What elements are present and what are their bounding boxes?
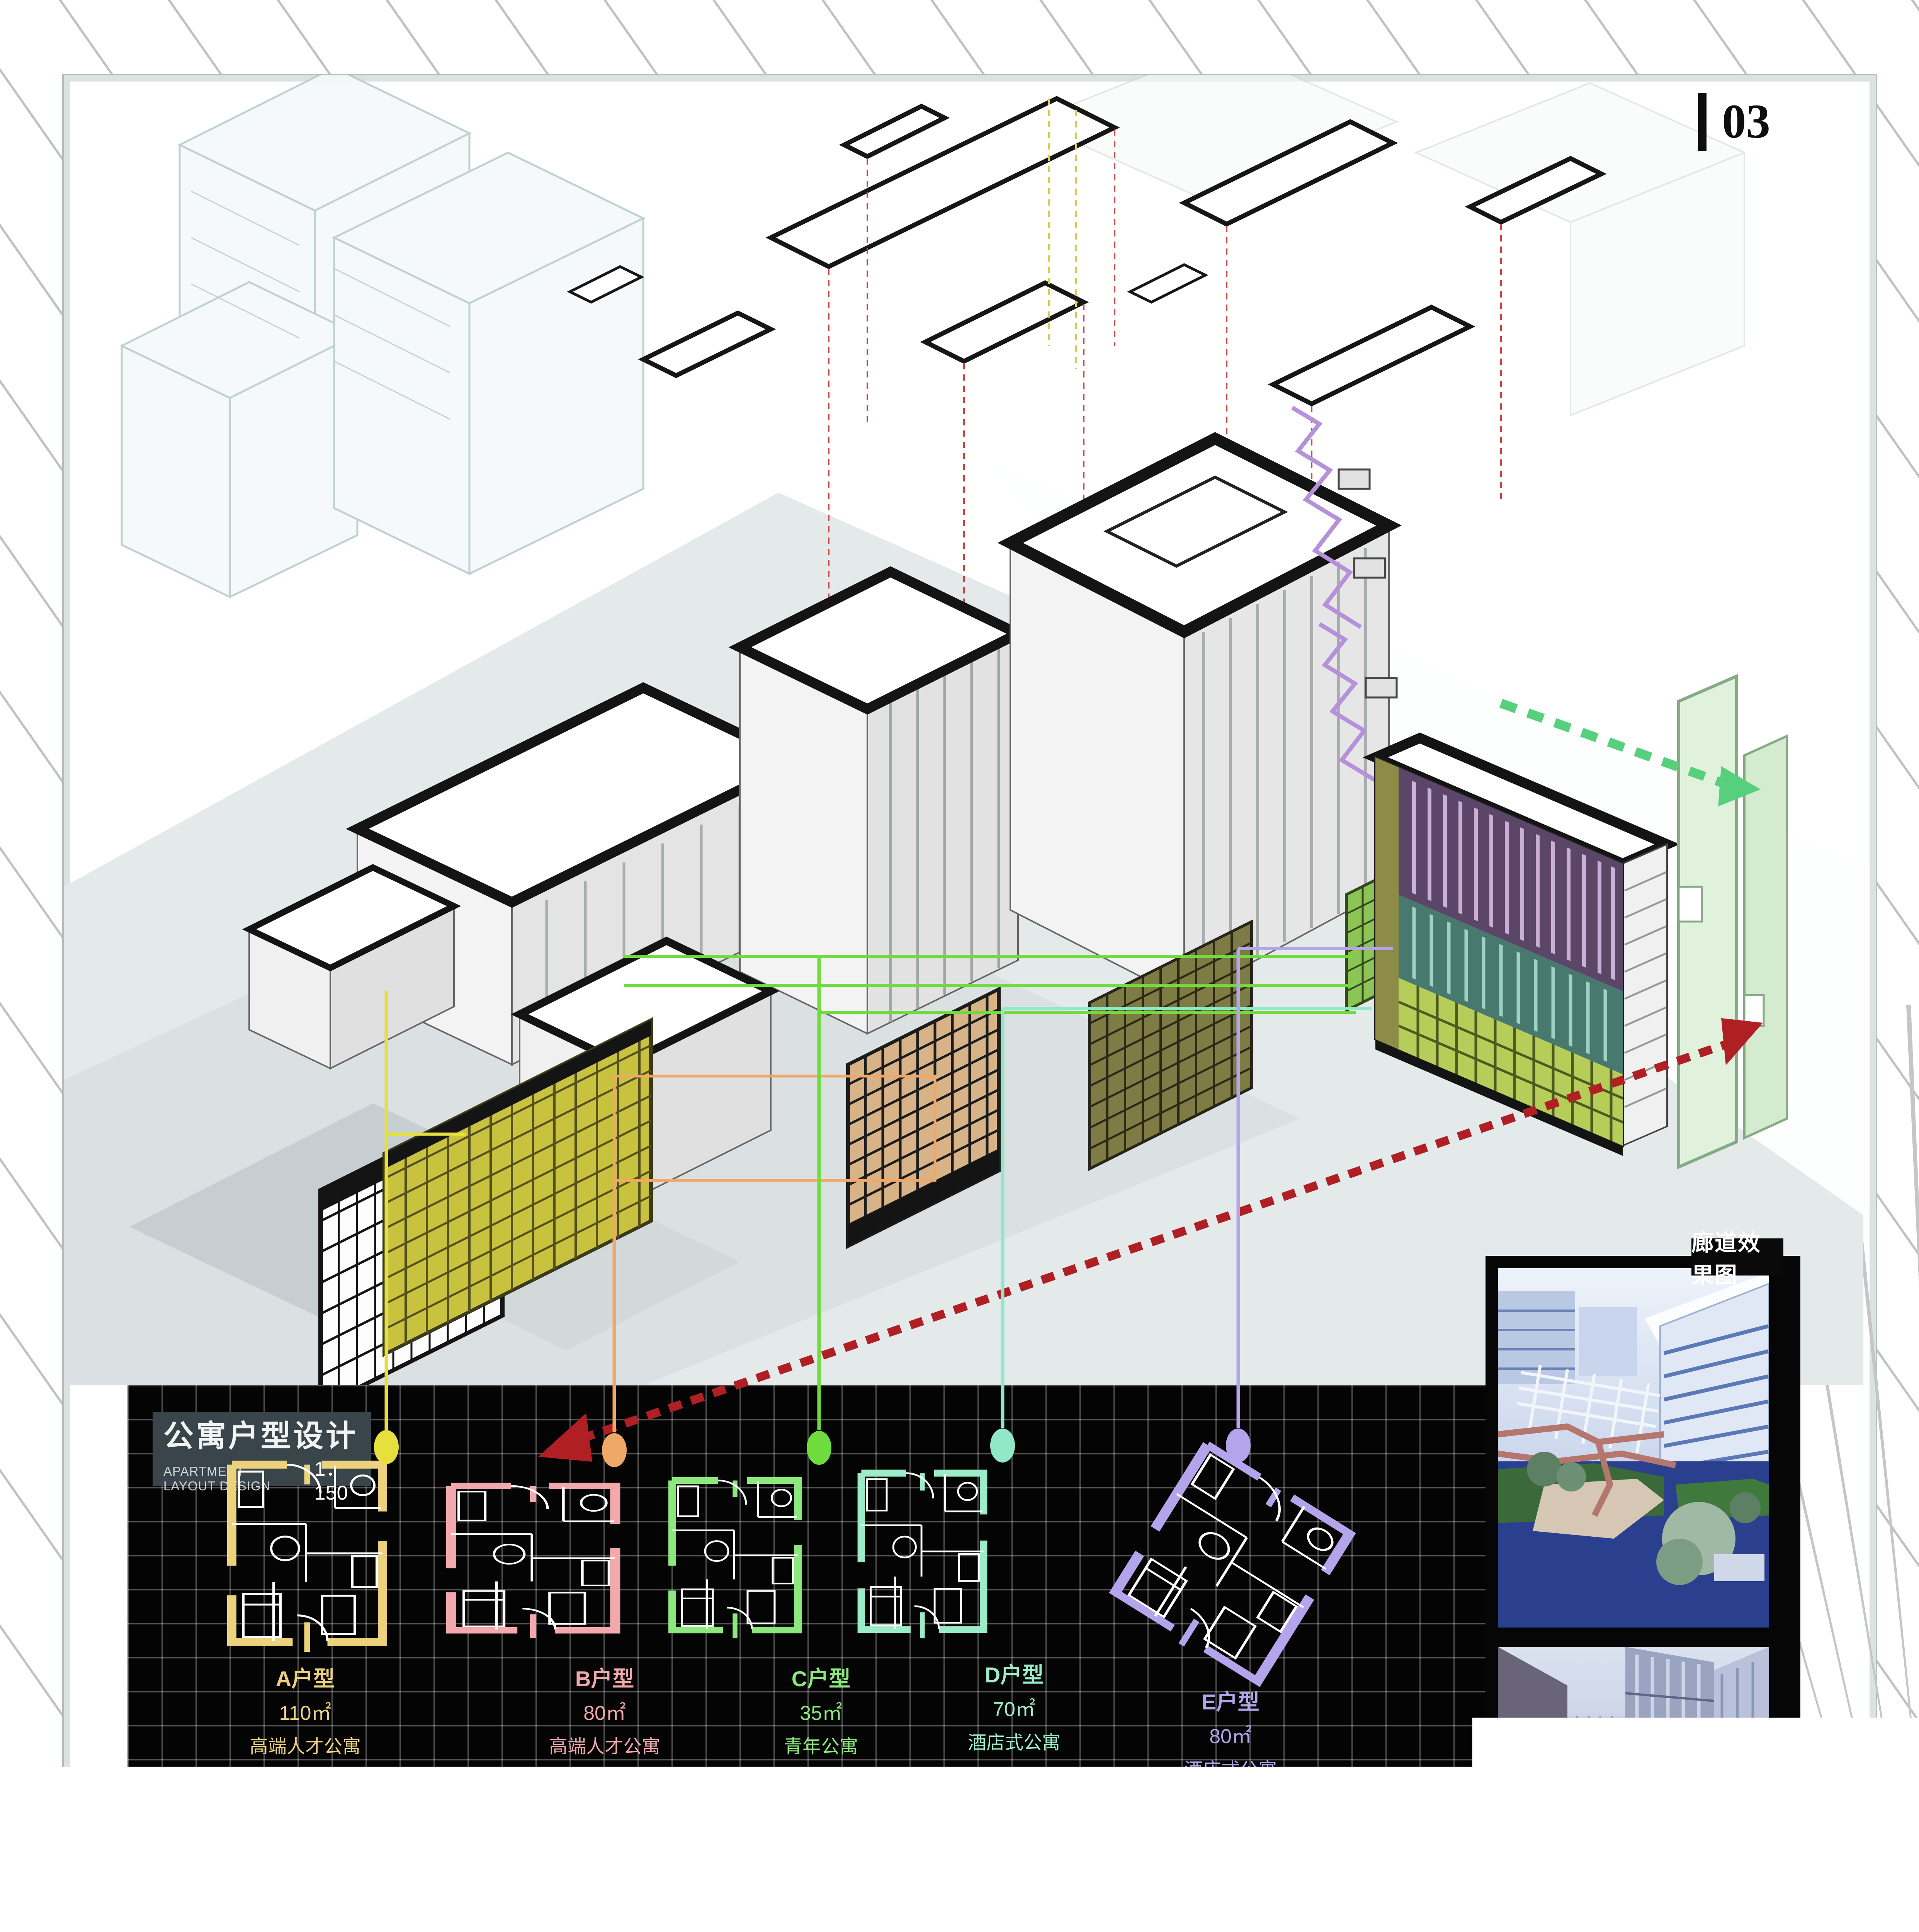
unit-name: D户型 bbox=[902, 1658, 1126, 1689]
corridor-render-panel bbox=[1486, 1256, 1800, 1932]
unit-B-info: B户型 80㎡ 高端人才公寓 户型根据需求灵活多变 适用于对生活品质较高的上班族… bbox=[493, 1662, 717, 1882]
floorplan-D bbox=[852, 1464, 993, 1638]
exploded-axonometric-diagram bbox=[64, 75, 1863, 1385]
unit-area: 80㎡ bbox=[493, 1697, 717, 1726]
unit-area: 80㎡ bbox=[1118, 1720, 1343, 1749]
page-number-value: 03 bbox=[1722, 94, 1770, 150]
corridor-render-street bbox=[1498, 1647, 1769, 1932]
glass-slab bbox=[1679, 676, 1787, 1167]
unit-features: 酒店式管理 洄游流线，路径合理 bbox=[902, 1772, 1126, 1816]
unit-type: 酒店式公寓 bbox=[902, 1727, 1126, 1754]
unit-area: 110㎡ bbox=[193, 1697, 417, 1726]
unit-description: 适用于满足刚需且预算不够充足的上班族及学生，也可以适用于游客居住 bbox=[709, 1818, 933, 1882]
unit-feature: 户型根据需求灵活多变 bbox=[193, 1776, 417, 1798]
unit-name: E户型 bbox=[1118, 1685, 1343, 1716]
unit-features: 酒店式管理 洄游流线，路径合理 阳台采光充足有设计感 bbox=[1118, 1799, 1343, 1865]
unit-area: 35㎡ bbox=[709, 1697, 933, 1726]
unit-description: 适用于对生活品质较高的上班族或者人数不多的小家庭及单独生活的老年人 bbox=[193, 1818, 417, 1882]
unit-feature: 户型根据需求灵活多变 bbox=[493, 1776, 717, 1798]
unit-description: 适用于追求生活品质的单身人群和长期出差的人员 bbox=[902, 1836, 1126, 1878]
ghost-context-buildings bbox=[122, 75, 643, 597]
unit-name: A户型 bbox=[193, 1662, 417, 1693]
unit-feature: 户型简单，功能齐全 bbox=[709, 1776, 933, 1798]
unit-type: 酒店式公寓 bbox=[1118, 1754, 1343, 1781]
page-number-bar bbox=[1698, 93, 1707, 151]
unit-type: 高端人才公寓 bbox=[193, 1731, 417, 1758]
unit-A-info: A户型 110㎡ 高端人才公寓 户型根据需求灵活多变 适用于对生活品质较高的上班… bbox=[193, 1662, 417, 1882]
floorplan-B bbox=[439, 1478, 628, 1638]
unit-type: 高端人才公寓 bbox=[493, 1731, 717, 1758]
corridor-render-aerial bbox=[1498, 1268, 1769, 1628]
unit-description: 适用于追求生活品质的单身人群和长期出差的人员 bbox=[1118, 1885, 1343, 1927]
unit-D-info: D户型 70㎡ 酒店式公寓 酒店式管理 洄游流线，路径合理 适用于追求生活品质的… bbox=[902, 1658, 1126, 1879]
unit-C-info: C户型 35㎡ 青年公寓 户型简单，功能齐全 适用于满足刚需且预算不够充足的上班… bbox=[709, 1662, 933, 1882]
unit-E-info: E户型 80㎡ 酒店式公寓 酒店式管理 洄游流线，路径合理 阳台采光充足有设计感… bbox=[1118, 1685, 1343, 1927]
unit-name: C户型 bbox=[709, 1662, 933, 1693]
apartment-panel-title: 公寓户型设计 bbox=[163, 1419, 360, 1452]
unit-area: 70㎡ bbox=[902, 1693, 1126, 1722]
floorplan-C bbox=[663, 1472, 807, 1638]
page-number: 03 bbox=[1698, 93, 1770, 151]
floorplan-A bbox=[220, 1455, 394, 1652]
unit-type: 青年公寓 bbox=[709, 1731, 933, 1758]
unit-name: B户型 bbox=[493, 1662, 717, 1693]
corridor-panel-label: 廊道效果图 bbox=[1691, 1238, 1783, 1276]
unit-description: 适用于对生活品质较高的上班族或者人数不多的小家庭及单独生活的老年人 bbox=[493, 1818, 717, 1882]
